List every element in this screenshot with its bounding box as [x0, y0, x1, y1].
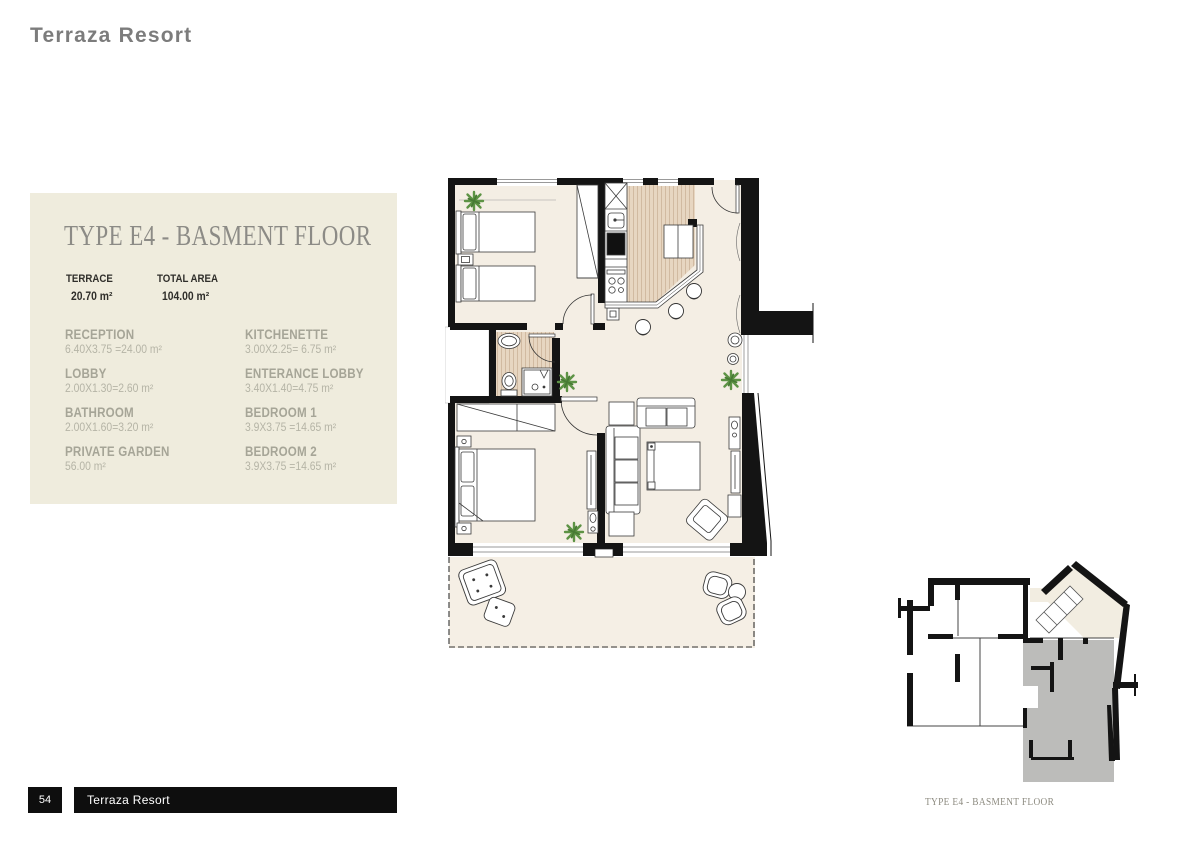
- room-name: BEDROOM 2: [245, 444, 398, 459]
- room-dims: 6.40X3.75 =24.00 m²: [65, 344, 225, 356]
- unit-type-title: TYPE E4 - BASMENT FLOOR: [64, 221, 372, 253]
- bed-headboard: [455, 447, 459, 527]
- stove-controls: [607, 270, 625, 274]
- brochure-page: Terraza Resort TYPE E4 - BASMENT FLOOR T…: [0, 0, 1190, 841]
- bar-stool: [687, 284, 702, 300]
- floor-plan: [445, 175, 815, 655]
- room-name: ENTERANCE LOBBY: [245, 366, 398, 381]
- list-item: RECEPTION6.40X3.75 =24.00 m²: [65, 327, 243, 356]
- room-name: LOBBY: [65, 366, 218, 381]
- room-name: KITCHENETTE: [245, 327, 398, 342]
- room-name: PRIVATE GARDEN: [65, 444, 218, 459]
- plant-icon: [465, 192, 483, 210]
- pillow: [461, 486, 474, 516]
- side-table: [609, 402, 634, 425]
- tv: [731, 451, 740, 493]
- list-item: BATHROOM2.00X1.60=3.20 m²: [65, 405, 243, 434]
- bed-headboard: [456, 211, 461, 254]
- list-item: PRIVATE GARDEN56.00 m²: [65, 444, 243, 473]
- plant-icon: [565, 523, 583, 541]
- pillow: [463, 214, 476, 250]
- room-dims: 56.00 m²: [65, 461, 225, 473]
- room-list-left: RECEPTION6.40X3.75 =24.00 m² LOBBY2.00X1…: [65, 327, 243, 483]
- dresser: [587, 451, 596, 509]
- shaft: [445, 327, 489, 403]
- unit-info-panel: TYPE E4 - BASMENT FLOOR TERRACE 20.70 m²…: [30, 193, 397, 504]
- room-dims: 3.9X3.75 =14.65 m²: [245, 422, 405, 434]
- oven: [607, 233, 625, 255]
- room-dims: 3.40X1.40=4.75 m²: [245, 383, 405, 395]
- page-title: Terraza Resort: [30, 24, 192, 48]
- pillow: [461, 452, 474, 482]
- bar-stool: [636, 320, 651, 336]
- terrace-step: [595, 549, 613, 557]
- list-item: BEDROOM 13.9X3.75 =14.65 m²: [245, 405, 423, 434]
- kitchen-island: [664, 225, 693, 258]
- unit-highlight: [1023, 640, 1114, 782]
- room-dims: 3.9X3.75 =14.65 m²: [245, 461, 405, 473]
- tv-cabinet: [728, 495, 741, 517]
- bar-stool: [669, 304, 684, 320]
- bed-headboard: [456, 265, 461, 302]
- list-item: KITCHENETTE3.00X2.25= 6.75 m²: [245, 327, 423, 356]
- page-number-badge: 54: [28, 787, 62, 813]
- unit-notch: [1023, 686, 1038, 708]
- pillow: [463, 268, 476, 299]
- total-area-value: 104.00 m²: [162, 291, 293, 303]
- room-dims: 2.00X1.60=3.20 m²: [65, 422, 225, 434]
- room-list-right: KITCHENETTE3.00X2.25= 6.75 m² ENTERANCE …: [245, 327, 423, 483]
- total-area-stat: TOTAL AREA 104.00 m²: [157, 273, 307, 303]
- list-item: ENTERANCE LOBBY3.40X1.40=4.75 m²: [245, 366, 423, 395]
- list-item: BEDROOM 23.9X3.75 =14.65 m²: [245, 444, 423, 473]
- list-item: LOBBY2.00X1.30=2.60 m²: [65, 366, 243, 395]
- room-name: BEDROOM 1: [245, 405, 398, 420]
- toilet-tank: [501, 390, 517, 396]
- room-dims: 2.00X1.30=2.60 m²: [65, 383, 225, 395]
- room-name: BATHROOM: [65, 405, 218, 420]
- mini-plan-caption: TYPE E4 - BASMENT FLOOR: [925, 796, 1054, 808]
- plant-icon: [558, 373, 576, 391]
- room-name: RECEPTION: [65, 327, 218, 342]
- footer-bar: Terraza Resort: [74, 787, 397, 813]
- total-area-label: TOTAL AREA: [157, 273, 289, 285]
- building-locator-plan: [898, 558, 1138, 793]
- side-table: [609, 512, 634, 536]
- plant-icon: [722, 371, 740, 389]
- room-dims: 3.00X2.25= 6.75 m²: [245, 344, 405, 356]
